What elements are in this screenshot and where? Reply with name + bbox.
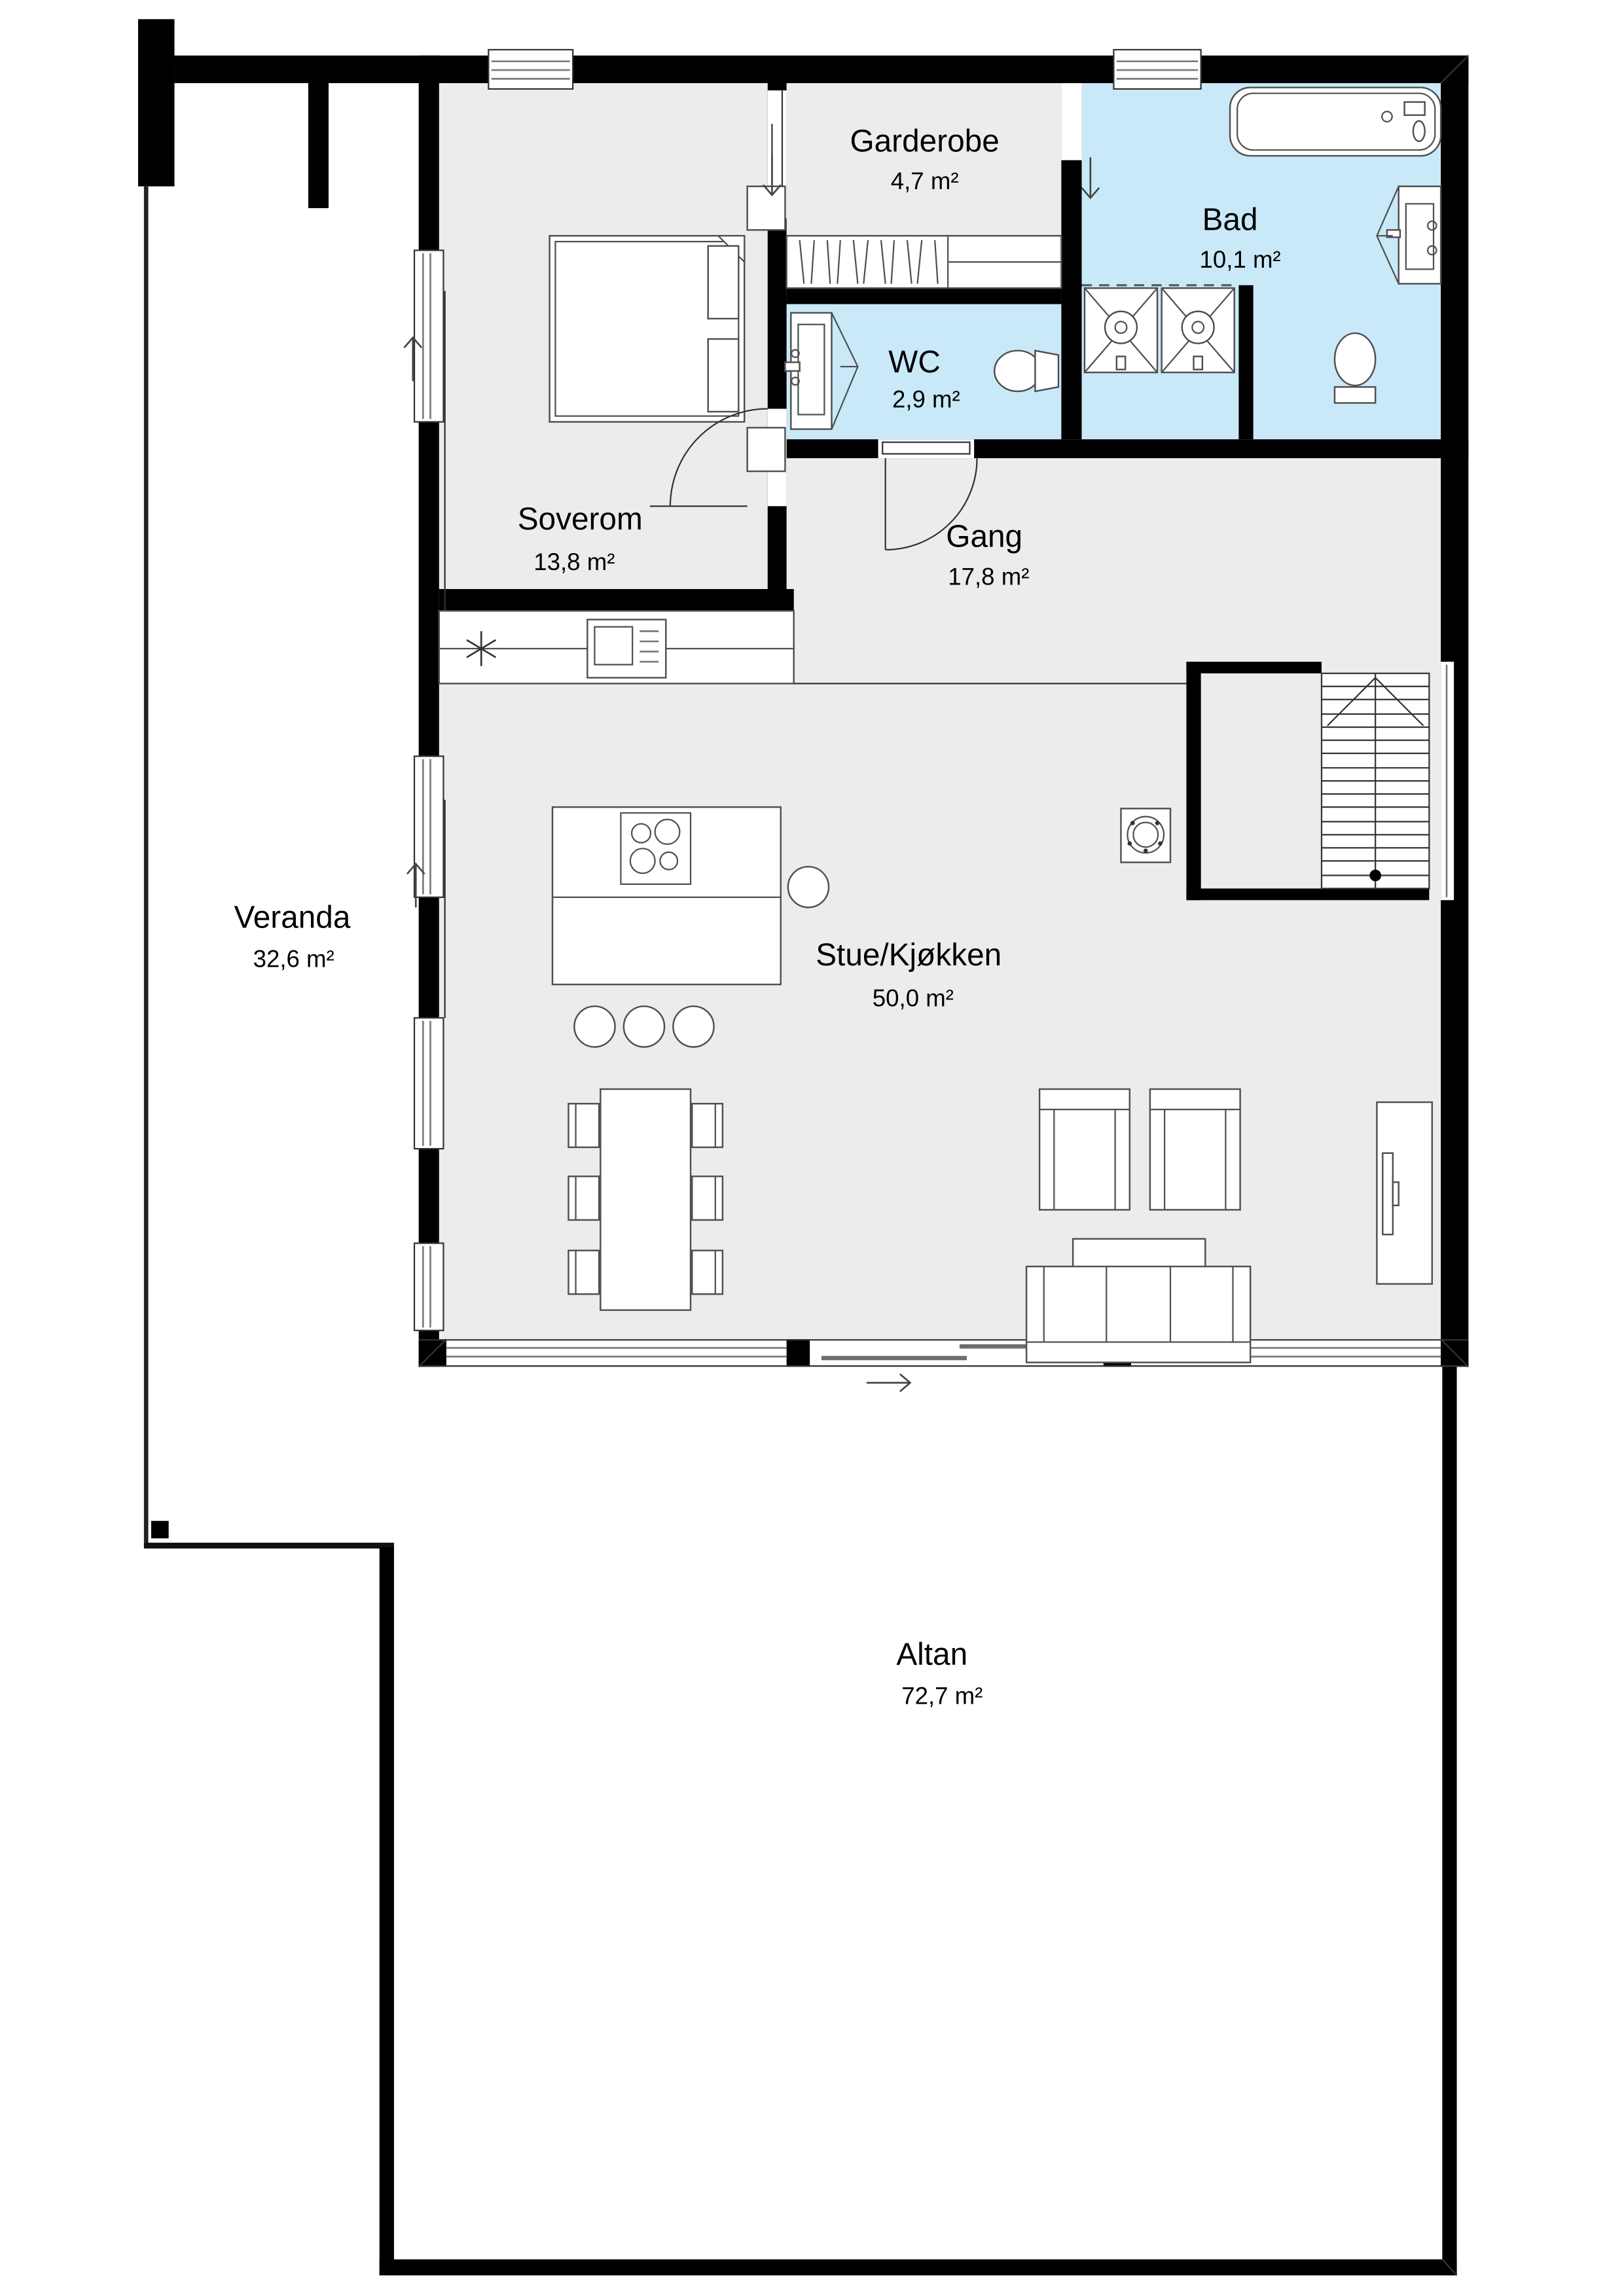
altan-right-wall [1442, 1367, 1456, 2275]
wall-stair-south [1186, 889, 1429, 901]
label-stue-kjokken: Stue/Kjøkken [816, 938, 1001, 973]
dining-chair [568, 1251, 599, 1295]
veranda-post [151, 1521, 169, 1539]
wall-top [175, 56, 1469, 83]
bar-stool [673, 1006, 713, 1047]
veranda-bottom-edge [144, 1543, 394, 1549]
kitchen-island [552, 807, 781, 984]
dining-chair [692, 1176, 723, 1220]
armchair [1150, 1089, 1240, 1210]
dining-chair [692, 1251, 723, 1295]
shower-cabin [1085, 288, 1157, 372]
window-left-3 [414, 1018, 443, 1149]
fireplace-icon [1121, 808, 1170, 862]
wardrobe-unit [787, 236, 1062, 288]
tv-bench [1377, 1102, 1432, 1284]
pillow [708, 339, 739, 412]
label-stue-kjokken-area: 50,0 m² [873, 984, 954, 1011]
stair-start-dot [1369, 870, 1381, 882]
opening-garderobe-bad [1061, 83, 1081, 160]
bathtub [1230, 88, 1441, 156]
floor-plan: Soverom 13,8 m² Garderobe 4,7 m² Bad 10,… [0, 0, 1624, 2296]
pillow [708, 246, 739, 319]
oven-icon [587, 620, 666, 678]
wall-soverom-south [439, 589, 794, 611]
tv-icon [1382, 1153, 1393, 1234]
wall-shower-stub [1238, 285, 1253, 439]
arrow-right-icon [867, 1374, 911, 1391]
label-wc: WC [888, 345, 941, 380]
veranda-corner-post [138, 19, 175, 186]
dining-chair [568, 1103, 599, 1147]
label-bad-area: 10,1 m² [1200, 246, 1281, 273]
toilet-icon [994, 351, 1058, 391]
shower-cabin [1162, 288, 1235, 372]
altan-left-wall [380, 1547, 394, 2276]
bar-stool [624, 1006, 664, 1047]
window-left-4 [414, 1243, 443, 1330]
nightstand [748, 427, 785, 471]
window-right-stair [1441, 662, 1454, 900]
nightstand [748, 187, 785, 230]
label-veranda-area: 32,6 m² [253, 945, 334, 972]
window-top-soverom [488, 50, 573, 89]
sofa [1026, 1266, 1250, 1363]
wall-stair-west [1186, 662, 1200, 900]
dining-chair [568, 1176, 599, 1220]
bar-stool [788, 867, 829, 907]
dining-chair [692, 1103, 723, 1147]
label-gang-area: 17,8 m² [948, 563, 1029, 590]
armchair [1039, 1089, 1130, 1210]
veranda-stub-wall [308, 83, 329, 208]
bar-stool [574, 1006, 615, 1047]
label-soverom: Soverom [518, 502, 643, 537]
wall-stair-north-cap [1186, 662, 1322, 673]
label-soverom-area: 13,8 m² [533, 548, 615, 575]
label-garderobe-area: 4,7 m² [891, 168, 959, 194]
label-altan-area: 72,7 m² [901, 1683, 983, 1710]
label-wc-area: 2,9 m² [892, 386, 960, 412]
window-top-bad [1113, 50, 1200, 89]
label-altan: Altan [896, 1638, 967, 1672]
wall-bottom-post-2 [787, 1339, 810, 1367]
label-bad: Bad [1202, 202, 1258, 237]
altan-bottom-wall [380, 2259, 1457, 2275]
veranda-left-edge [144, 187, 149, 1547]
staircase [1322, 673, 1429, 889]
toilet-icon [1335, 333, 1375, 403]
label-garderobe: Garderobe [850, 124, 999, 158]
label-gang: Gang [946, 520, 1022, 554]
window-wall-south [419, 1340, 1469, 1366]
label-veranda: Veranda [234, 900, 350, 935]
dining-table [600, 1089, 691, 1310]
